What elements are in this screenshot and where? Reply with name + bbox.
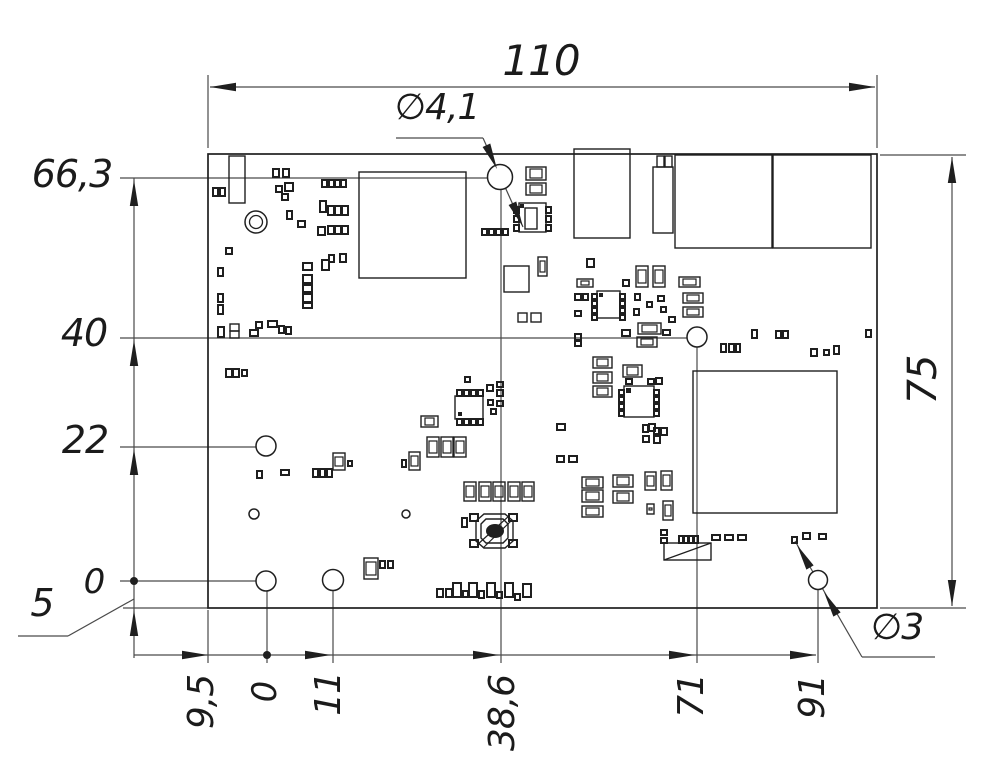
pcb-pad [505,583,513,597]
pcb-pad [592,301,597,306]
pcb-pad [329,255,334,262]
pcb-pad [546,225,551,231]
chip-component [538,257,547,276]
chip-component-body [642,325,657,332]
pcb-pad [658,296,664,301]
pcb-pad [213,188,218,196]
chip-component-body [617,493,629,501]
mounting-hole [323,570,344,591]
pin1-mark [599,293,603,297]
pcb-pad [298,221,305,227]
mounting-hole [256,436,276,456]
mounting-hole [402,510,410,518]
pcb-pad [635,294,640,300]
pcb-pad [464,419,469,425]
chip-component [577,279,593,287]
pcb-pad [303,303,312,308]
dim-label-edge-5: 5 [30,584,53,622]
pcb-pad [619,397,624,402]
via-ring-inner [250,216,263,229]
dim-label-x-91: 91 [795,675,831,719]
chip-component-body [481,486,489,497]
pcb-pad [575,341,581,346]
pcb-pad [592,315,597,320]
pcb-pad [834,346,839,354]
pcb-pad [497,401,503,406]
chip-component-body [663,475,670,486]
pcb-pad [656,378,662,384]
mounting-hole [249,509,259,519]
dim-label-hole-dia-4-1: ∅4,1 [395,90,480,126]
pcb-pad [546,216,551,222]
pcb-pad [575,294,581,300]
pcb-pad [620,308,625,313]
pcb-pad [318,227,325,235]
dimension-arrow [790,651,816,659]
pcb-pad [218,305,223,314]
chip-component-body [687,295,699,301]
pcb-pad [328,206,334,215]
dim-label-y-66-3: 66,3 [32,155,113,193]
pcb-pad [342,226,348,234]
crystal-center-mark [486,524,504,538]
chip-component-body [586,479,599,486]
pcb-pad [654,397,659,402]
pcb-pad [478,419,483,425]
component-outline [665,156,672,167]
chip-component-body [429,441,437,453]
pcb-pad [497,382,503,387]
component-outline [230,324,239,331]
pcb-pad [286,327,291,334]
crystal-pad [509,514,517,521]
pcb-pad [620,315,625,320]
dimension-arrow [793,543,813,570]
chip-component-body [665,505,671,516]
pcb-pad [469,583,477,597]
pcb-pad [282,194,288,200]
pcb-outline [208,154,877,608]
pcb-pad [684,536,688,543]
pcb-pad [322,180,327,187]
pcb-pad [557,424,565,430]
pcb-pad [792,537,797,543]
pcb-pad [487,583,495,597]
pcb-pad [220,188,225,196]
pcb-pad [303,275,312,283]
pcb-pad [661,538,667,543]
pcb-pad [341,180,346,187]
pcb-pad [503,229,508,235]
pcb-pad [689,536,693,543]
pcb-pad [273,169,279,177]
chip-component-body [510,486,518,497]
component-outline [675,155,772,248]
chip-component-body [530,185,542,193]
pcb-pad [226,369,232,377]
pcb-pad [342,206,348,215]
pcb-pad [619,411,624,416]
pcb-pad [620,301,625,306]
pcb-pad [457,390,462,396]
pcb-pad [320,469,325,477]
chip-component-body [443,441,451,453]
mounting-hole [809,571,828,590]
pcb-pad [256,322,262,328]
dim-label-x-0: 0 [248,682,282,703]
pcb-pad [643,436,649,442]
pcb-pad [557,456,564,462]
pcb-pad [283,169,289,177]
pcb-pad [803,533,810,539]
dim-label-x-38-6: 38,6 [485,675,521,751]
pcb-pad [463,591,468,597]
chip-component-body [335,457,343,466]
dimension-arrow [305,651,331,659]
pcb-pad [242,370,247,376]
pcb-pad [654,411,659,416]
component-outline [657,156,664,167]
component-outline [693,371,837,513]
pcb-pad [218,294,223,302]
pcb-pad [648,379,654,384]
pcb-pad [233,369,239,377]
pcb-pad [402,460,406,467]
via-ring-outer [245,211,267,233]
pcb-pad [482,229,487,235]
mounting-hole [256,571,276,591]
dimension-arrow [210,83,236,91]
chip-component-body [366,562,376,575]
pcb-pad [592,308,597,313]
dimension-arrow [182,651,208,659]
pcb-pad [575,311,581,316]
dim-label-x-11: 11 [311,672,347,716]
pcb-pad [811,349,817,356]
chip-component-body [495,486,503,497]
engineering-drawing-canvas: 110 75 66,3 40 22 0 5 ∅4,1 ∅3 9,5 0 11 3… [0,0,1000,774]
pcb-pad [335,180,340,187]
pcb-pad [488,400,493,405]
chip-component-body [597,374,608,381]
pcb-pad [313,469,318,477]
pcb-pad [478,390,483,396]
pcb-pad [669,317,675,322]
pcb-pad [738,535,746,540]
dim-label-x-9-5: 9,5 [184,675,220,729]
chip-component-body [586,508,599,515]
pcb-pad [866,330,871,337]
pcb-pad [348,461,352,466]
pcb-pad [303,263,312,270]
dim-label-y-0: 0 [84,565,105,599]
pcb-pad [496,229,501,235]
pcb-pad [250,330,258,336]
pcb-pad [721,344,726,352]
pcb-pad [587,259,594,267]
pcb-pad [491,409,496,414]
pcb-pad [694,536,698,543]
pcb-dimension-drawing [0,0,1000,774]
dim-label-y-40: 40 [61,314,107,352]
chip-component-body [597,359,608,366]
pcb-pad [575,334,581,340]
dimension-arrow [820,590,840,617]
chip-component-body [627,367,638,375]
chip-component-body [655,270,663,283]
pcb-pad [622,330,630,336]
dimension-arrow [130,340,138,366]
chip-component-body [524,486,532,497]
pin1-mark [520,204,524,208]
dimension-arrow [948,580,956,606]
component-outline [653,167,673,233]
pcb-pad [679,536,683,543]
pcb-pad [661,307,666,312]
pcb-pad [497,390,503,396]
chip-component-body [641,339,653,345]
component-outline [574,149,630,238]
dimension-arrow [948,157,956,183]
pcb-pad [661,428,667,435]
pcb-pad [626,379,632,384]
chip-component-body [540,261,545,272]
chip-component-body [581,281,589,285]
datum-origin-dot [263,651,271,659]
pcb-pad [819,534,826,539]
pcb-pad [634,309,639,315]
pcb-pad [515,594,520,600]
pcb-pad [226,248,232,254]
pcb-pad [471,390,476,396]
pcb-pad [464,390,469,396]
pcb-pad [661,530,667,535]
pcb-pad [729,344,734,352]
component-outline [773,155,871,248]
pcb-pad [303,294,312,302]
pcb-pad [654,436,660,443]
chip-component-body [411,456,418,466]
pcb-pad [654,390,659,395]
pin1-mark [626,388,631,393]
chip-component-body [466,486,474,497]
pcb-pad [643,425,648,432]
dimension-arrow [669,651,695,659]
mounting-hole [488,165,513,190]
component-outline [359,172,466,278]
pcb-pad [619,390,624,395]
dimension-arrow [130,180,138,206]
pcb-pad [388,561,393,568]
pcb-pad [725,535,733,540]
pcb-pad [663,330,670,335]
pcb-pad [465,377,470,382]
pcb-pad [546,207,551,213]
pcb-pad [569,456,577,462]
component-outline [229,156,245,203]
inductor-diagonal [664,543,711,560]
dimension-arrow [130,610,138,636]
pcb-pad [285,183,293,191]
chip-component-body [683,279,696,285]
pcb-pad [489,229,494,235]
pcb-pad [654,404,659,409]
chip-component-body [649,508,652,510]
component-outline [531,313,541,322]
pcb-pad [592,294,597,299]
pcb-pad [752,330,757,338]
chip-component-body [586,492,599,500]
pcb-pad [623,280,629,286]
pin1-mark [458,412,462,416]
pcb-pad [712,535,720,540]
pcb-pad [462,518,467,527]
pcb-pad [380,561,385,568]
pcb-pad [824,350,829,355]
pcb-pad [446,589,452,597]
chip-component [647,504,654,514]
dimension-line [68,599,134,636]
pcb-pad [257,471,262,478]
component-outline [525,208,537,229]
dimension-arrow [849,83,875,91]
datum-origin-dot [130,577,138,585]
pcb-pad [437,589,443,597]
chip-component-body [456,441,464,453]
pcb-pad [328,226,334,234]
component-outline [518,313,527,322]
component-outline [230,331,239,338]
pcb-pad [276,186,282,192]
dimension-arrow [130,449,138,475]
pcb-pad [268,321,277,327]
pcb-pad [279,326,284,333]
pcb-pad [329,180,334,187]
dim-label-y-22: 22 [62,421,108,459]
pcb-pad [514,225,519,231]
pcb-pad [736,344,740,352]
pcb-pad [287,211,292,219]
dim-label-height-75: 75 [903,356,943,405]
pcb-pad [654,428,659,434]
pcb-pad [783,331,788,338]
chip-component-body [687,309,699,315]
pcb-pad [218,327,224,337]
pcb-pad [281,470,289,475]
component-outline [504,266,529,292]
chip-component-body [647,476,654,486]
pcb-pad [583,294,588,300]
pcb-pad [497,592,502,598]
pcb-pad [776,331,781,338]
pcb-pad [453,583,461,597]
pcb-pad [335,226,341,234]
pcb-pad [620,294,625,299]
pcb-pad [322,260,329,270]
pcb-pad [479,591,484,598]
dimension-arrow [473,651,499,659]
pcb-pad [523,584,531,597]
chip-component-body [617,477,629,485]
mounting-hole [687,327,707,347]
dim-label-width-110: 110 [502,40,579,82]
dim-label-x-71: 71 [674,674,710,718]
pcb-pad [320,201,326,212]
chip-component-body [638,270,646,283]
pcb-pad [327,469,332,477]
dim-label-hole-dia-3: ∅3 [871,610,923,646]
pcb-pad [471,419,476,425]
chip-component-body [530,169,542,178]
chip-component-body [425,418,434,425]
chip-component-body [597,388,608,395]
pcb-pad [647,302,652,307]
pcb-pad [487,385,493,391]
pcb-pad [619,404,624,409]
pcb-pad [303,285,312,292]
pcb-pad [340,254,346,262]
pcb-pad [457,419,462,425]
pcb-pad [335,206,341,215]
pcb-pad [218,268,223,276]
